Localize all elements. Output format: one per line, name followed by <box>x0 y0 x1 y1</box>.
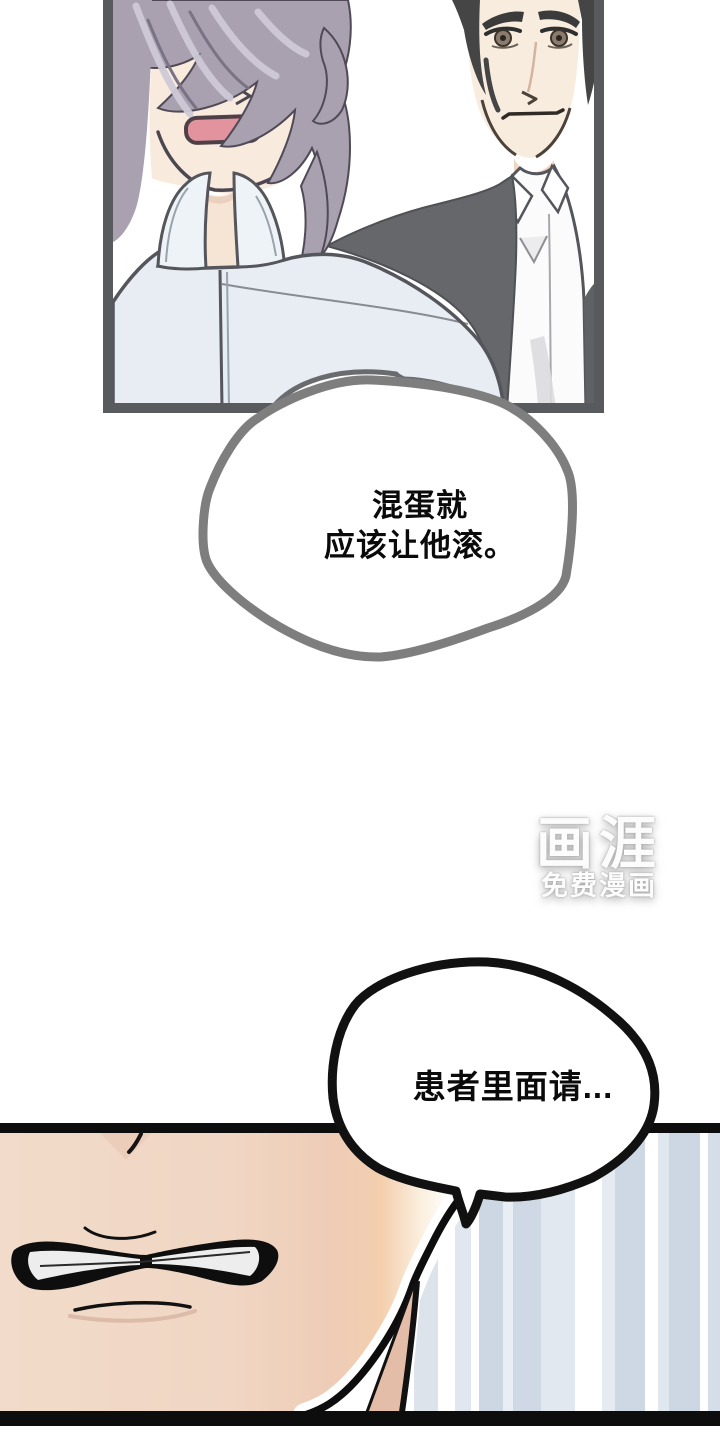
comic-page: 混蛋就 应该让他滚。 患者里面请... 画涯 免费漫画 <box>0 0 720 1440</box>
top-panel-illustration <box>113 0 604 411</box>
bottom-panel-illustration <box>0 1133 720 1415</box>
speech-bubble-2-text: 患者里面请... <box>363 1068 663 1106</box>
comic-artwork <box>0 0 720 1440</box>
speech-bubble-1-text: 混蛋就 应该让他滚。 <box>270 486 570 566</box>
speech-line: 应该让他滚。 <box>270 526 570 566</box>
watermark-tagline: 免费漫画 <box>541 864 657 903</box>
bottom-panel-bottom-border <box>0 1411 720 1426</box>
speech-line: 患者里面请... <box>363 1068 663 1106</box>
speech-line: 混蛋就 <box>270 486 570 526</box>
